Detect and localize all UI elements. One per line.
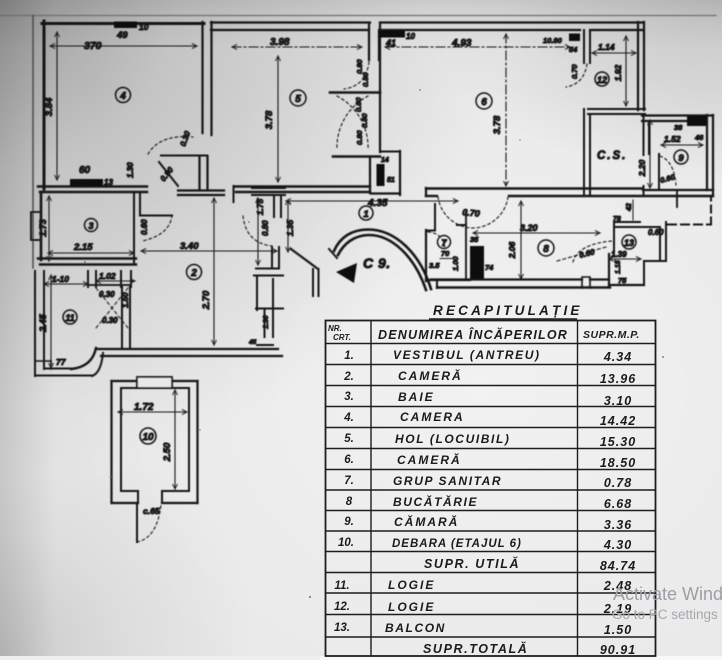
svg-text:49: 49 <box>116 30 128 41</box>
svg-text:35: 35 <box>470 235 479 244</box>
svg-text:4.34: 4.34 <box>603 350 632 364</box>
svg-text:3.36: 3.36 <box>604 518 632 532</box>
svg-text:Go to PC settings: Go to PC settings <box>612 607 718 622</box>
svg-text:SUPR.TOTALĂ: SUPR.TOTALĂ <box>423 641 528 656</box>
svg-text:VESTIBUL (ANTREU): VESTIBUL (ANTREU) <box>393 348 541 362</box>
svg-text:0.80: 0.80 <box>355 130 364 145</box>
svg-text:3.78: 3.78 <box>264 110 275 129</box>
svg-text:11: 11 <box>65 313 74 323</box>
svg-text:13.96: 13.96 <box>600 372 636 386</box>
svg-text:2.20: 2.20 <box>637 159 647 177</box>
svg-text:1: 1 <box>363 209 368 220</box>
svg-text:42: 42 <box>626 203 633 212</box>
svg-text:CAMERĂ: CAMERĂ <box>397 452 462 467</box>
svg-text:13: 13 <box>624 238 634 248</box>
svg-text:1.14: 1.14 <box>598 42 615 52</box>
svg-text:3.98: 3.98 <box>270 37 290 48</box>
svg-text:2.15: 2.15 <box>73 242 93 253</box>
svg-text:CĂMARĂ: CĂMARĂ <box>394 514 459 529</box>
svg-text:1.30: 1.30 <box>263 315 270 329</box>
svg-text:CAMERĂ: CAMERĂ <box>398 368 463 383</box>
svg-text:1.73: 1.73 <box>38 219 48 237</box>
svg-text:1.72: 1.72 <box>134 402 154 413</box>
svg-text:1.50: 1.50 <box>604 623 632 637</box>
svg-text:DENUMIREA ÎNCĂPERILOR: DENUMIREA ÎNCĂPERILOR <box>378 327 568 342</box>
svg-text:51: 51 <box>387 177 395 184</box>
svg-text:1-10: 1-10 <box>52 274 69 284</box>
svg-text:1.02: 1.02 <box>99 271 116 281</box>
svg-text:1.30: 1.30 <box>126 162 135 178</box>
svg-text:11.: 11. <box>334 580 349 592</box>
svg-text:CRT.: CRT. <box>333 333 351 342</box>
svg-text:C 9.: C 9. <box>363 255 391 271</box>
svg-text:45: 45 <box>248 339 257 346</box>
svg-text:0.30: 0.30 <box>102 316 118 325</box>
svg-text:SUPR.M.P.: SUPR.M.P. <box>583 329 640 341</box>
svg-text:3.78: 3.78 <box>492 115 503 134</box>
svg-text:1.15: 1.15 <box>615 260 622 274</box>
svg-text:84.74: 84.74 <box>600 559 636 573</box>
svg-text:3: 3 <box>88 221 93 231</box>
svg-text:BUCĂTĂRIE: BUCĂTĂRIE <box>393 494 478 509</box>
svg-text:2.70: 2.70 <box>201 290 212 310</box>
svg-text:SUPR. UTILĂ: SUPR. UTILĂ <box>424 556 520 571</box>
svg-text:90.91: 90.91 <box>600 643 636 657</box>
svg-text:0.78: 0.78 <box>604 476 632 490</box>
svg-text:0.30: 0.30 <box>99 290 115 299</box>
svg-text:0.80: 0.80 <box>261 220 270 236</box>
svg-text:0.80: 0.80 <box>360 113 369 128</box>
svg-text:1.92: 1.92 <box>613 64 623 81</box>
svg-text:4.30: 4.30 <box>603 538 632 552</box>
svg-text:0.70: 0.70 <box>462 207 480 219</box>
svg-text:18.50: 18.50 <box>600 456 636 470</box>
svg-text:12: 12 <box>597 75 607 85</box>
svg-text:38: 38 <box>674 123 683 132</box>
svg-text:78: 78 <box>613 216 621 223</box>
svg-text:6.68: 6.68 <box>604 497 632 511</box>
svg-text:2.06: 2.06 <box>507 241 517 259</box>
svg-text:GRUP SANITAR: GRUP SANITAR <box>393 474 502 488</box>
svg-text:1.39: 1.39 <box>611 250 627 259</box>
svg-text:3.84: 3.84 <box>44 97 55 116</box>
svg-text:1.52: 1.52 <box>664 134 681 144</box>
svg-text:1.: 1. <box>344 350 354 362</box>
svg-text:0.70: 0.70 <box>570 64 579 79</box>
svg-text:LOGIE: LOGIE <box>388 600 435 614</box>
svg-text:4: 4 <box>119 91 126 102</box>
svg-text:LOGIE: LOGIE <box>388 578 435 592</box>
svg-text:RECAPITULAȚIE: RECAPITULAȚIE <box>433 303 583 318</box>
svg-text:3.5: 3.5 <box>429 261 440 270</box>
svg-text:5: 5 <box>295 94 301 105</box>
svg-text:BAIE: BAIE <box>398 390 435 404</box>
svg-text:12.: 12. <box>334 601 350 613</box>
svg-text:2: 2 <box>190 268 197 279</box>
svg-text:2.45: 2.45 <box>38 313 48 333</box>
svg-text:1.35: 1.35 <box>285 219 295 236</box>
svg-text:2.50: 2.50 <box>162 442 173 462</box>
svg-text:9.: 9. <box>344 516 354 528</box>
svg-text:0.80: 0.80 <box>361 72 370 87</box>
svg-text:0.60: 0.60 <box>140 219 149 235</box>
svg-text:10.: 10. <box>338 537 354 549</box>
svg-text:6: 6 <box>481 97 487 108</box>
svg-text:54: 54 <box>569 45 578 54</box>
svg-text:0.60: 0.60 <box>648 228 664 237</box>
svg-text:14.42: 14.42 <box>600 414 636 428</box>
svg-text:DEBARA (ETAJUL 6): DEBARA (ETAJUL 6) <box>392 538 522 550</box>
svg-text:8: 8 <box>346 496 353 508</box>
svg-text:46: 46 <box>694 133 704 142</box>
svg-text:Activate Wind: Activate Wind <box>613 584 722 604</box>
svg-text:70: 70 <box>441 249 450 258</box>
svg-text:3.: 3. <box>344 391 354 403</box>
svg-text:CAMERA: CAMERA <box>400 410 465 424</box>
svg-text:BALCON: BALCON <box>385 621 446 635</box>
svg-text:8: 8 <box>543 244 549 255</box>
svg-text:3.40: 3.40 <box>180 241 199 252</box>
svg-text:74: 74 <box>485 263 494 272</box>
svg-text:0.80: 0.80 <box>354 97 363 112</box>
svg-text:9: 9 <box>678 153 684 164</box>
svg-text:7.: 7. <box>344 475 354 487</box>
svg-text:6.: 6. <box>344 454 354 466</box>
svg-text:4.: 4. <box>343 412 354 424</box>
svg-text:10: 10 <box>139 22 149 32</box>
svg-text:3.20: 3.20 <box>520 223 538 233</box>
svg-text:2.: 2. <box>343 371 354 383</box>
svg-text:3.10: 3.10 <box>604 394 632 408</box>
svg-text:60: 60 <box>79 165 91 176</box>
svg-text:13: 13 <box>104 178 113 187</box>
svg-text:NR.: NR. <box>328 324 342 333</box>
svg-text:15.30: 15.30 <box>600 435 636 449</box>
svg-text:14: 14 <box>381 157 389 164</box>
svg-text:1.50: 1.50 <box>121 292 130 308</box>
svg-text:1.75: 1.75 <box>255 198 265 215</box>
svg-text:c.65: c.65 <box>143 506 160 516</box>
svg-text:13.: 13. <box>334 622 350 634</box>
svg-text:HOL (LOCUIBIL): HOL (LOCUIBIL) <box>395 432 511 446</box>
svg-text:10: 10 <box>142 432 154 443</box>
svg-text:75: 75 <box>618 276 627 285</box>
svg-text:77: 77 <box>56 357 67 367</box>
svg-text:4.93: 4.93 <box>451 38 472 49</box>
svg-text:0.80: 0.80 <box>355 59 364 74</box>
svg-text:5.: 5. <box>344 433 354 445</box>
svg-text:C.S.: C.S. <box>597 150 627 162</box>
svg-text:1.00: 1.00 <box>451 256 460 271</box>
svg-text:10: 10 <box>406 32 415 41</box>
svg-text:370: 370 <box>84 40 102 52</box>
svg-text:10.80: 10.80 <box>543 36 563 45</box>
